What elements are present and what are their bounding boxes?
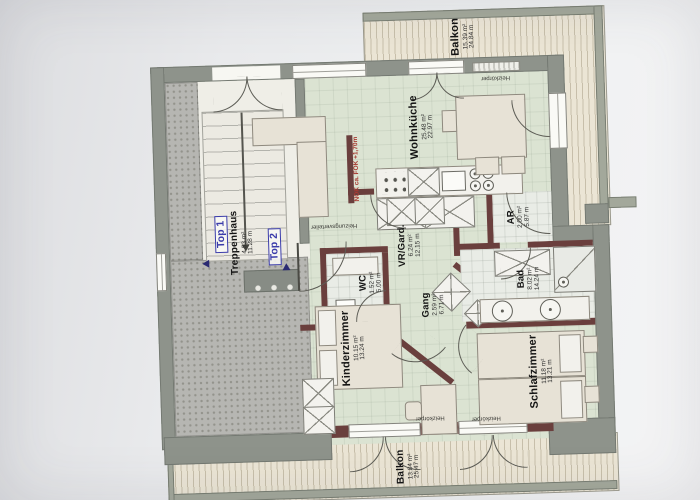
window-top-1: [292, 63, 366, 79]
nightstand-2: [584, 386, 600, 403]
vr-wardrobe-2: [414, 196, 445, 225]
wall-bottom-left: [164, 432, 333, 465]
dining-table: [455, 94, 527, 160]
room-label-balkon-bottom: Balkon 13.84 m²25.47 m: [396, 449, 422, 484]
annotation-heizkoerper-top: Heizkörper: [481, 74, 510, 81]
bed-2-pillow: [560, 380, 583, 419]
radiator-top: [472, 61, 520, 73]
bed-1-pillow: [559, 334, 582, 373]
unit-label-top1: Top 1: [214, 216, 228, 254]
floor-plan-photo: Balkon 15.39 m²24.84 m Wohnküche 25.48 m…: [0, 0, 700, 500]
vr-wardrobe-1: [386, 197, 417, 226]
room-label-gang: Gang 2.59 m²6.71 m: [421, 292, 446, 318]
unit-label-top2: Top 2: [268, 228, 282, 266]
balcony-top-end-wall: [585, 203, 610, 224]
kinder-pillow-1: [318, 310, 337, 347]
balcony-door-right: [548, 92, 568, 149]
kitchen-base-cabinet: [407, 167, 440, 196]
window-top-2: [408, 60, 464, 76]
room-label-treppenhaus: Treppenhaus 4.53 m²11.28 m: [229, 210, 256, 275]
dining-chair-3: [442, 110, 458, 132]
room-label-wohnkueche: Wohnküche 25.48 m²22.97 m: [408, 95, 436, 160]
nightstand-1: [583, 336, 599, 353]
room-label-balkon-top: Balkon 15.39 m²24.84 m: [450, 17, 477, 56]
kinder-wardrobe-2: [303, 406, 336, 435]
room-label-bad: Bad 8.02 m²14.24 m: [516, 267, 541, 291]
door-opening-stairs: [212, 65, 280, 80]
kinder-desk: [420, 384, 458, 435]
room-label-schlafzimmer: Schlafzimmer 11.18 m²13.21 m: [528, 334, 556, 409]
annotation-heizkoerper-kinder: Heizkörper: [416, 414, 445, 421]
entry-arrow-icon-top1: [202, 260, 209, 268]
dining-chair-2: [501, 156, 526, 175]
entry-arrow-icon-top2: [282, 263, 290, 270]
kitchen-counter-l-vertical: [296, 141, 328, 218]
window-left: [156, 253, 167, 291]
floor-plan: Balkon 15.39 m²24.84 m Wohnküche 25.48 m…: [140, 0, 641, 500]
room-label-kinderzimmer: Kinderzimmer 10.15 m²13.24 m: [340, 310, 369, 387]
french-door-kinderzimmer: [348, 422, 420, 438]
annotation-heizkoerper-schlaf: Heizkörper: [472, 415, 501, 422]
kinder-wardrobe-1: [302, 378, 335, 409]
room-label-ar: AR 2.00 m²5.87 m: [506, 206, 531, 229]
hatched-structure-strip: [165, 82, 204, 261]
room-label-wc: WC 1.52 m²5.00 m: [358, 271, 383, 294]
kitchen-sink: [441, 171, 466, 192]
dining-chair-1: [475, 157, 500, 176]
balcony-top-railing-stub: [608, 196, 636, 208]
kitchen-hob-icon: [379, 172, 406, 193]
room-label-vr-gard: VR/Gard. 6.24 m²12.15 m: [397, 224, 423, 267]
